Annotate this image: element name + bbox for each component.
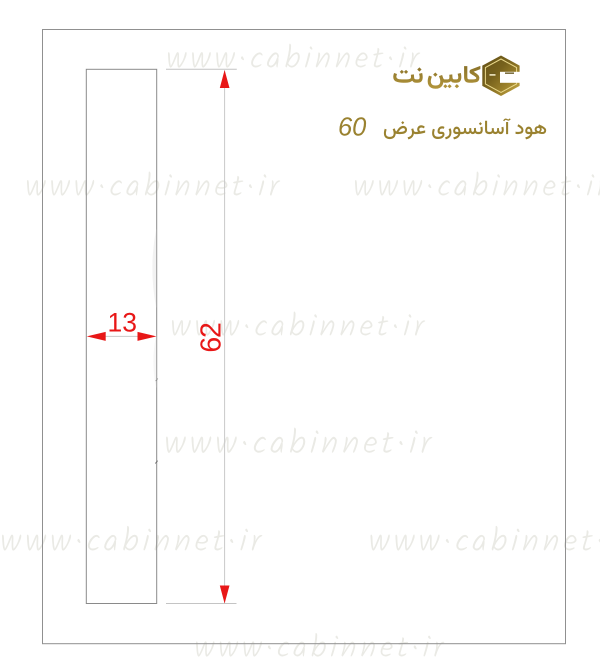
svg-text:62: 62 [196, 323, 228, 353]
svg-text:13: 13 [107, 308, 136, 338]
svg-text:60: 60 [338, 114, 366, 142]
